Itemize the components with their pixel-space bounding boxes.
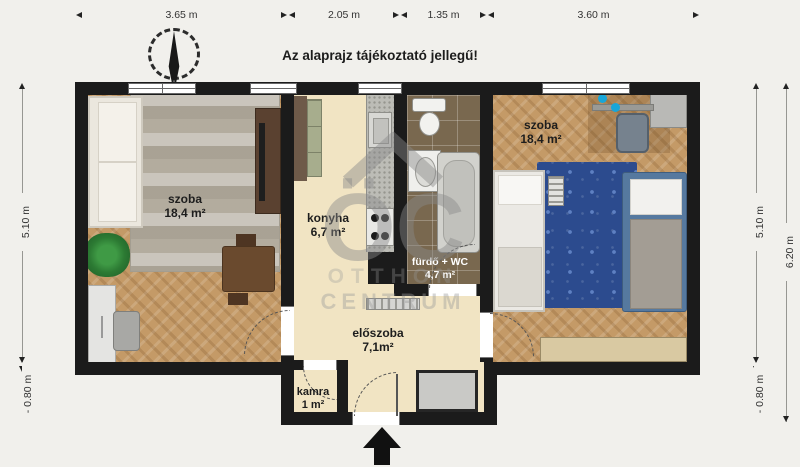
living-room-label: szoba 18,4 m² xyxy=(140,192,230,221)
dim-right-inner-height: 5.10 m xyxy=(754,193,766,251)
kitchen-cabinet-doors xyxy=(307,99,322,177)
burner xyxy=(381,232,389,240)
wall-bottom-right xyxy=(484,362,700,375)
bathroom-label: fürdő + WC 4,7 m² xyxy=(395,256,485,281)
dim-top-1-label: 3.65 m xyxy=(165,9,197,21)
tv-console xyxy=(255,108,281,214)
wall-porch-right xyxy=(484,362,497,425)
living-room-name: szoba xyxy=(168,192,202,206)
side-cabinet xyxy=(88,285,116,368)
tv xyxy=(259,123,265,201)
window-living-room xyxy=(128,83,196,94)
dim-right-outer-height: 6.20 m xyxy=(784,223,796,281)
dining-chair xyxy=(228,293,248,305)
single-bed-white xyxy=(493,170,545,312)
pantry-label: kamra 1 m² xyxy=(285,386,341,412)
sofa-cushion xyxy=(98,162,137,222)
dim-top-3-label: 1.35 m xyxy=(427,9,459,21)
wall-right xyxy=(687,82,700,375)
kitchen-wall-stub xyxy=(368,252,394,284)
bathroom-name: fürdő + WC xyxy=(412,256,468,269)
dining-chair xyxy=(236,234,256,246)
dim-top-4-label: 3.60 m xyxy=(577,9,609,21)
dim-top-3: 1.35 m xyxy=(400,8,487,22)
kitchen-label: konyha 6,7 m² xyxy=(283,211,373,240)
sink-bowl xyxy=(415,157,436,187)
hallway-label: előszoba 7,1m² xyxy=(333,326,423,355)
desk-lamp xyxy=(598,94,607,103)
pantry-area: 1 m² xyxy=(302,399,325,412)
desk-accessory xyxy=(611,103,620,112)
plant xyxy=(84,233,130,277)
blanket xyxy=(498,247,542,307)
cabinet-handle xyxy=(101,316,103,338)
pillow xyxy=(498,175,542,205)
pillow xyxy=(630,179,682,215)
toilet-tank xyxy=(412,98,446,112)
hallway-name: előszoba xyxy=(352,326,403,340)
window-kitchen xyxy=(250,83,297,94)
living-room-area: 18,4 m² xyxy=(164,206,205,220)
dim-top-4: 3.60 m xyxy=(487,8,700,22)
burner xyxy=(381,214,389,222)
hallway-radiator xyxy=(366,298,420,310)
dining-table xyxy=(222,246,275,292)
hallway-area: 7,1m² xyxy=(362,340,393,354)
entrance-arrow-stem xyxy=(374,446,390,465)
bathtub-basin xyxy=(443,160,475,247)
kitchen-name: konyha xyxy=(307,211,349,225)
dim-left-offset: - 0.80 m xyxy=(22,364,34,424)
entrance-arrow-icon xyxy=(363,427,401,448)
dim-left-height: 5.10 m xyxy=(20,193,32,251)
wall-bottom-left xyxy=(75,362,294,375)
desk-chair xyxy=(113,311,140,351)
pantry-name: kamra xyxy=(297,386,329,399)
wardrobe xyxy=(540,337,687,362)
kitchen-area: 6,7 m² xyxy=(311,225,346,239)
plan-disclaimer-title: Az alaprajz tájékoztató jellegű! xyxy=(255,48,505,63)
bedroom-label: szoba 18,4 m² xyxy=(496,118,586,147)
radiator xyxy=(548,176,564,206)
bedroom-area: 18,4 m² xyxy=(520,132,561,146)
desk xyxy=(592,104,654,111)
sink-basin xyxy=(373,118,389,144)
toilet-bowl xyxy=(419,112,440,136)
window-bedroom xyxy=(542,83,630,94)
dim-top-2-label: 2.05 m xyxy=(328,9,360,21)
bathtub xyxy=(437,152,480,253)
dim-top-2: 2.05 m xyxy=(288,8,400,22)
window-bathroom xyxy=(358,83,402,94)
floor-plan-canvas: 3.65 m 2.05 m 1.35 m 3.60 m Az alaprajz … xyxy=(0,0,800,467)
entry-closet xyxy=(416,370,478,412)
wall-left xyxy=(75,82,88,375)
bedroom-name: szoba xyxy=(524,118,558,132)
office-chair xyxy=(616,113,649,153)
bathroom-area: 4,7 m² xyxy=(425,269,455,282)
single-bed-blue xyxy=(622,172,687,312)
bedroom-cabinet xyxy=(650,92,687,128)
dim-right-inner-offset: - 0.80 m xyxy=(754,364,766,424)
dim-top-1: 3.65 m xyxy=(75,8,288,22)
kitchen-sink xyxy=(368,112,392,148)
kitchen-tall-cabinet xyxy=(294,96,307,181)
sofa-cushion xyxy=(98,102,137,162)
sofa xyxy=(88,96,143,228)
blanket xyxy=(630,219,682,309)
